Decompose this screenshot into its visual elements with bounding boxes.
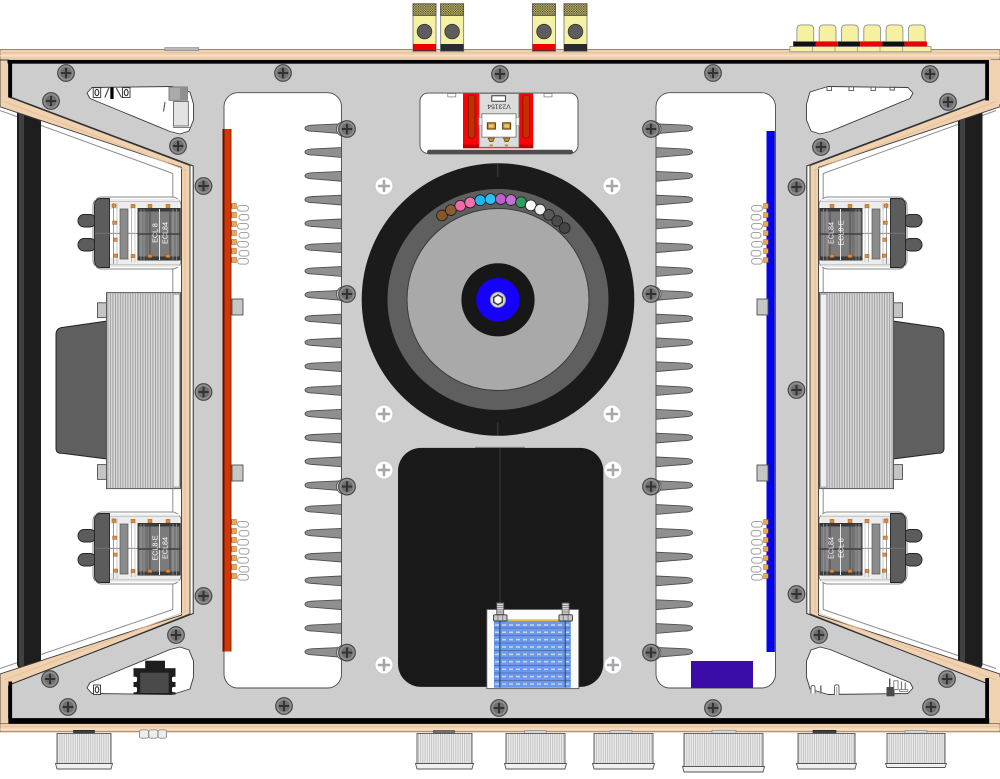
svg-text:ECL 8: ECL 8 — [837, 538, 846, 558]
svg-text:ECL8·E: ECL8·E — [151, 535, 160, 560]
svg-text:ECL 8: ECL 8 — [151, 223, 160, 243]
svg-text:ECL84: ECL84 — [827, 537, 836, 559]
svg-text:V23154: V23154 — [487, 102, 511, 109]
svg-text:ECL8·E: ECL8·E — [837, 220, 846, 245]
svg-text:ECL84: ECL84 — [161, 537, 170, 559]
svg-text:ECL84: ECL84 — [827, 222, 836, 244]
svg-text:ECL84: ECL84 — [161, 222, 170, 244]
